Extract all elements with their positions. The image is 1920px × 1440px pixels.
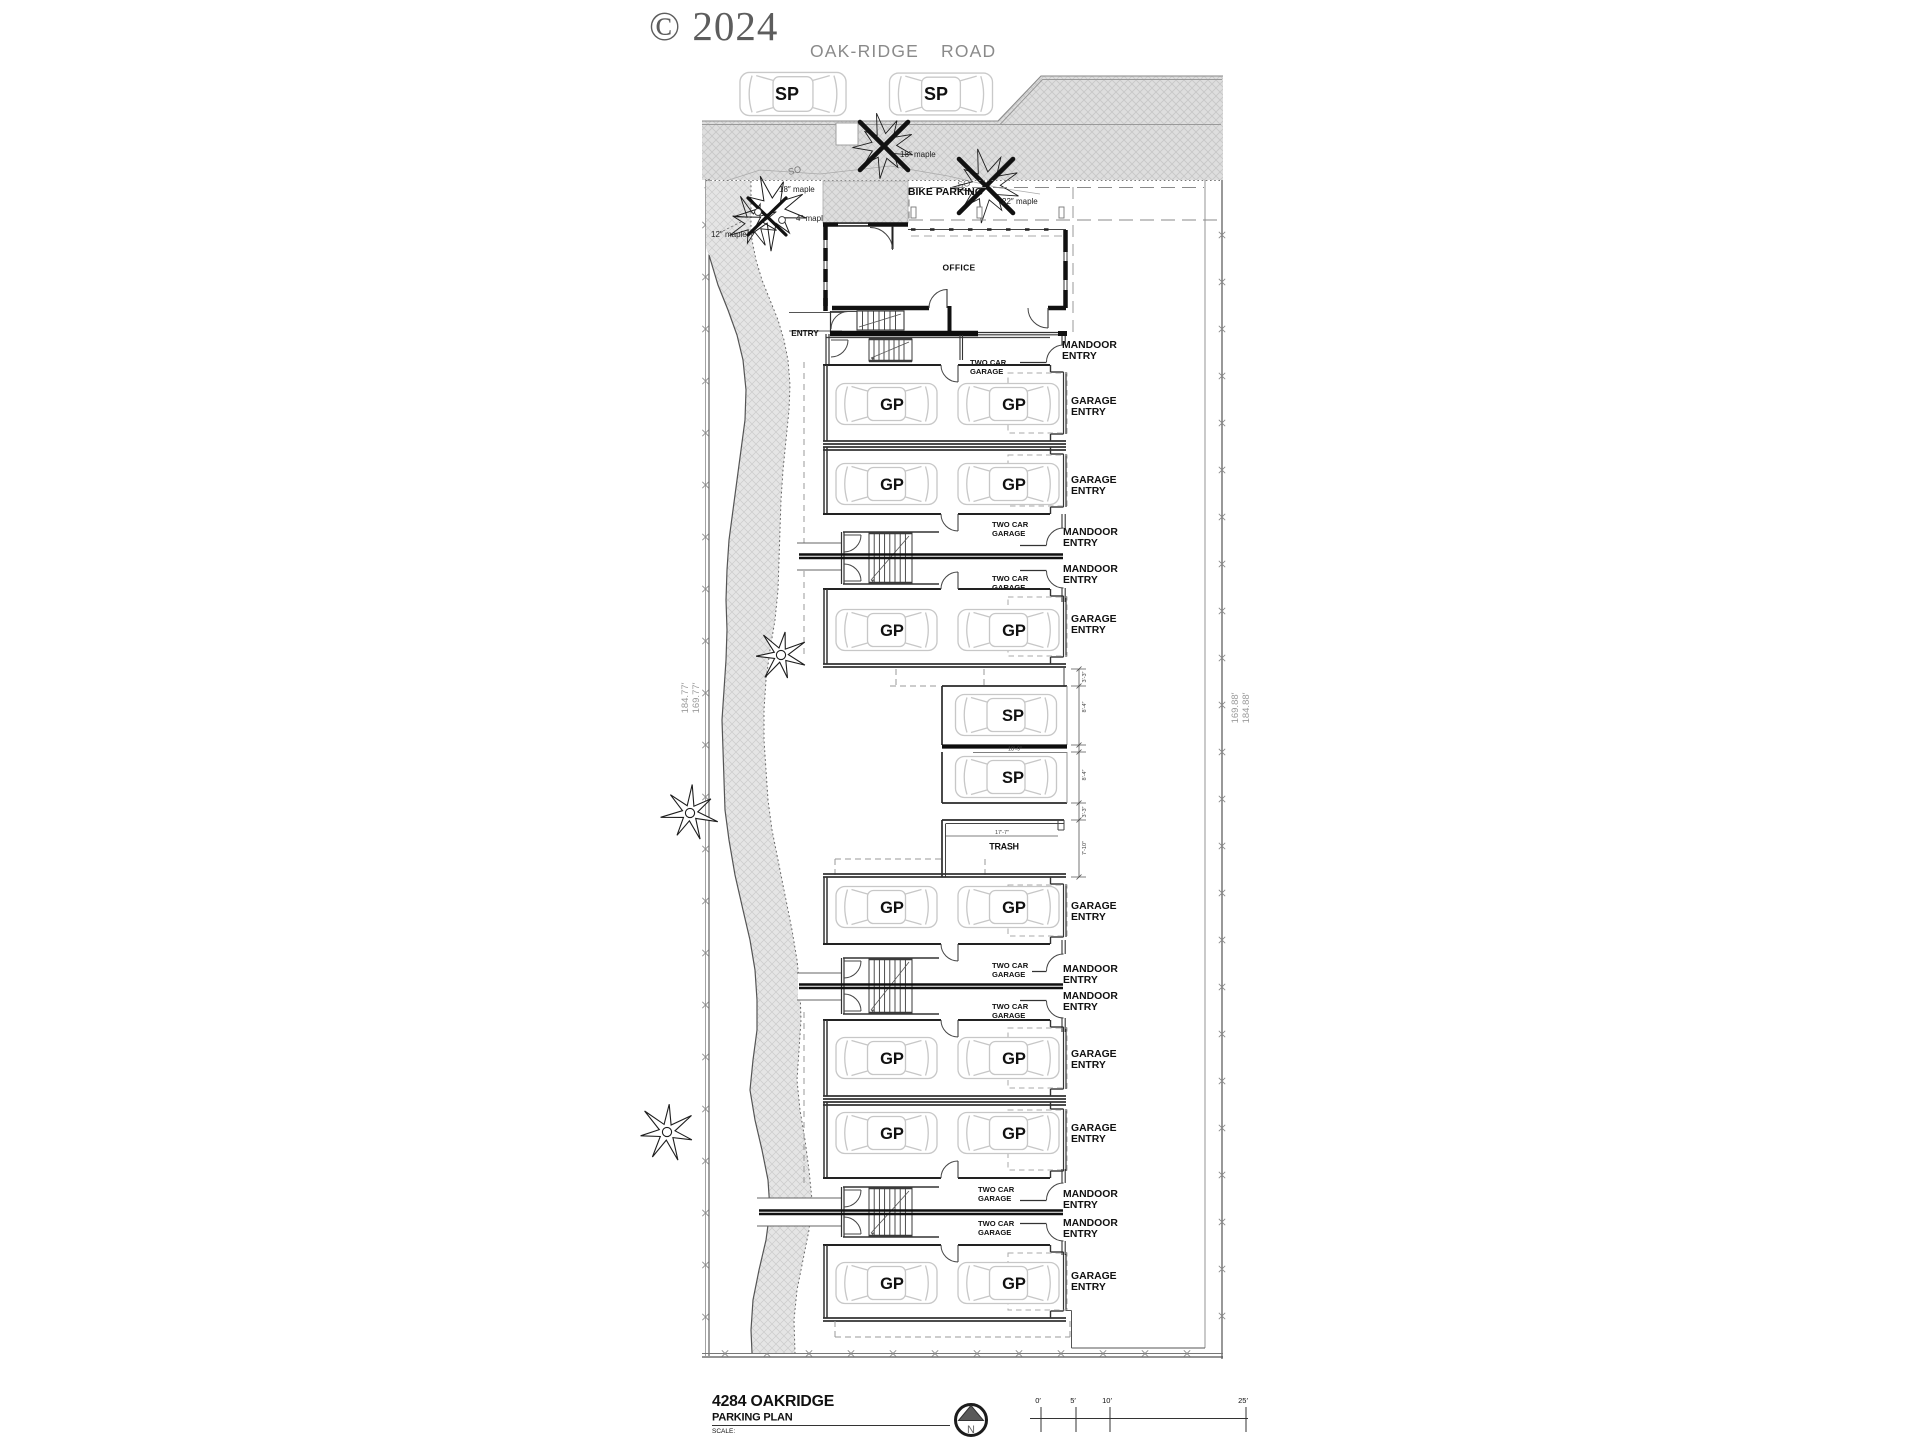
svg-text:© 2024: © 2024 xyxy=(649,3,778,49)
svg-text:GARAGE: GARAGE xyxy=(992,970,1025,979)
svg-text:BIKE PARKING: BIKE PARKING xyxy=(908,187,983,198)
svg-text:GARAGE: GARAGE xyxy=(1071,1049,1117,1060)
svg-text:ENTRY: ENTRY xyxy=(1071,625,1106,636)
svg-text:184.77′: 184.77′ xyxy=(680,682,691,713)
svg-text:GARAGE: GARAGE xyxy=(1071,396,1117,407)
svg-text:GARAGE: GARAGE xyxy=(970,367,1003,376)
svg-text:GARAGE: GARAGE xyxy=(992,1011,1025,1020)
svg-text:ENTRY: ENTRY xyxy=(1063,575,1098,586)
svg-text:GARAGE: GARAGE xyxy=(992,529,1025,538)
svg-text:10′: 10′ xyxy=(1102,1396,1112,1405)
svg-text:ENTRY: ENTRY xyxy=(1071,1282,1106,1293)
svg-text:GARAGE: GARAGE xyxy=(992,583,1025,592)
svg-text:ENTRY: ENTRY xyxy=(1071,1134,1106,1145)
svg-text:TRASH: TRASH xyxy=(989,842,1019,852)
svg-text:MANDOOR: MANDOOR xyxy=(1063,991,1118,1002)
svg-text:SP: SP xyxy=(1002,769,1024,787)
svg-text:0′: 0′ xyxy=(1035,1396,1041,1405)
svg-text:25′: 25′ xyxy=(1238,1396,1248,1405)
svg-text:MANDOOR: MANDOOR xyxy=(1063,1189,1118,1200)
svg-text:ENTRY: ENTRY xyxy=(791,329,819,338)
svg-text:GP: GP xyxy=(1002,899,1026,917)
svg-text:169.88′: 169.88′ xyxy=(1230,692,1241,723)
svg-text:MANDOOR: MANDOOR xyxy=(1062,340,1117,351)
svg-text:GARAGE: GARAGE xyxy=(978,1194,1011,1203)
svg-text:8′-4″: 8′-4″ xyxy=(1082,769,1088,780)
svg-text:ENTRY: ENTRY xyxy=(1063,538,1098,549)
svg-text:TWO CAR: TWO CAR xyxy=(992,574,1029,583)
svg-text:GP: GP xyxy=(880,622,904,640)
svg-text:18″ maple: 18″ maple xyxy=(779,185,815,194)
svg-text:TWO CAR: TWO CAR xyxy=(978,1185,1015,1194)
svg-text:MANDOOR: MANDOOR xyxy=(1063,564,1118,575)
svg-text:PARKING PLAN: PARKING PLAN xyxy=(712,1412,793,1424)
svg-text:GP: GP xyxy=(880,1275,904,1293)
svg-text:ROAD: ROAD xyxy=(941,41,996,61)
svg-text:ENTRY: ENTRY xyxy=(1063,1229,1098,1240)
svg-text:GP: GP xyxy=(880,1125,904,1143)
svg-text:TWO CAR: TWO CAR xyxy=(978,1219,1015,1228)
svg-text:GP: GP xyxy=(1002,1125,1026,1143)
svg-text:GARAGE: GARAGE xyxy=(1071,475,1117,486)
svg-text:TWO CAR: TWO CAR xyxy=(992,520,1029,529)
svg-text:12″ maple: 12″ maple xyxy=(711,230,747,239)
svg-text:169.77′: 169.77′ xyxy=(691,682,702,713)
svg-text:GP: GP xyxy=(1002,1275,1026,1293)
svg-text:GARAGE: GARAGE xyxy=(978,1228,1011,1237)
svg-text:3′-3″: 3′-3″ xyxy=(1082,671,1088,682)
svg-text:GP: GP xyxy=(880,899,904,917)
svg-text:N: N xyxy=(967,1424,975,1436)
svg-text:7′-10″: 7′-10″ xyxy=(1082,841,1088,855)
svg-text:TWO CAR: TWO CAR xyxy=(992,961,1029,970)
svg-text:GP: GP xyxy=(1002,1050,1026,1068)
svg-text:SP: SP xyxy=(924,84,948,104)
svg-text:GARAGE: GARAGE xyxy=(1071,901,1117,912)
svg-text:ENTRY: ENTRY xyxy=(1062,351,1097,362)
svg-text:18′-9″: 18′-9″ xyxy=(1008,747,1022,753)
svg-text:SCALE:: SCALE: xyxy=(712,1428,735,1435)
svg-text:MANDOOR: MANDOOR xyxy=(1063,527,1118,538)
svg-text:4284 OAKRIDGE: 4284 OAKRIDGE xyxy=(712,1393,834,1410)
svg-text:GP: GP xyxy=(880,396,904,414)
svg-text:8′-4″: 8′-4″ xyxy=(1082,701,1088,712)
svg-text:5′: 5′ xyxy=(1070,1396,1076,1405)
svg-text:3′-3″: 3′-3″ xyxy=(1082,806,1088,817)
svg-text:SP: SP xyxy=(1002,707,1024,725)
svg-text:18″ maple: 18″ maple xyxy=(900,150,936,159)
svg-text:SP: SP xyxy=(775,84,799,104)
svg-text:GARAGE: GARAGE xyxy=(1071,1271,1117,1282)
svg-text:22″ maple: 22″ maple xyxy=(1002,197,1038,206)
svg-text:GP: GP xyxy=(880,476,904,494)
svg-text:17′-7″: 17′-7″ xyxy=(995,830,1009,836)
svg-text:ENTRY: ENTRY xyxy=(1063,1002,1098,1013)
svg-text:OFFICE: OFFICE xyxy=(943,263,976,273)
svg-text:ENTRY: ENTRY xyxy=(1071,912,1106,923)
svg-text:GARAGE: GARAGE xyxy=(1071,614,1117,625)
svg-text:GP: GP xyxy=(1002,622,1026,640)
svg-text:MANDOOR: MANDOOR xyxy=(1063,1218,1118,1229)
svg-text:GP: GP xyxy=(1002,396,1026,414)
svg-text:ENTRY: ENTRY xyxy=(1063,975,1098,986)
svg-text:184.88′: 184.88′ xyxy=(1241,692,1252,723)
svg-text:TWO CAR: TWO CAR xyxy=(992,1002,1029,1011)
svg-text:GARAGE: GARAGE xyxy=(1071,1123,1117,1134)
svg-text:OAK-RIDGE: OAK-RIDGE xyxy=(810,41,919,61)
svg-text:MANDOOR: MANDOOR xyxy=(1063,964,1118,975)
svg-text:ENTRY: ENTRY xyxy=(1071,486,1106,497)
svg-text:GP: GP xyxy=(880,1050,904,1068)
svg-text:ENTRY: ENTRY xyxy=(1071,1060,1106,1071)
svg-text:ENTRY: ENTRY xyxy=(1063,1200,1098,1211)
svg-text:GP: GP xyxy=(1002,476,1026,494)
svg-text:ENTRY: ENTRY xyxy=(1071,407,1106,418)
